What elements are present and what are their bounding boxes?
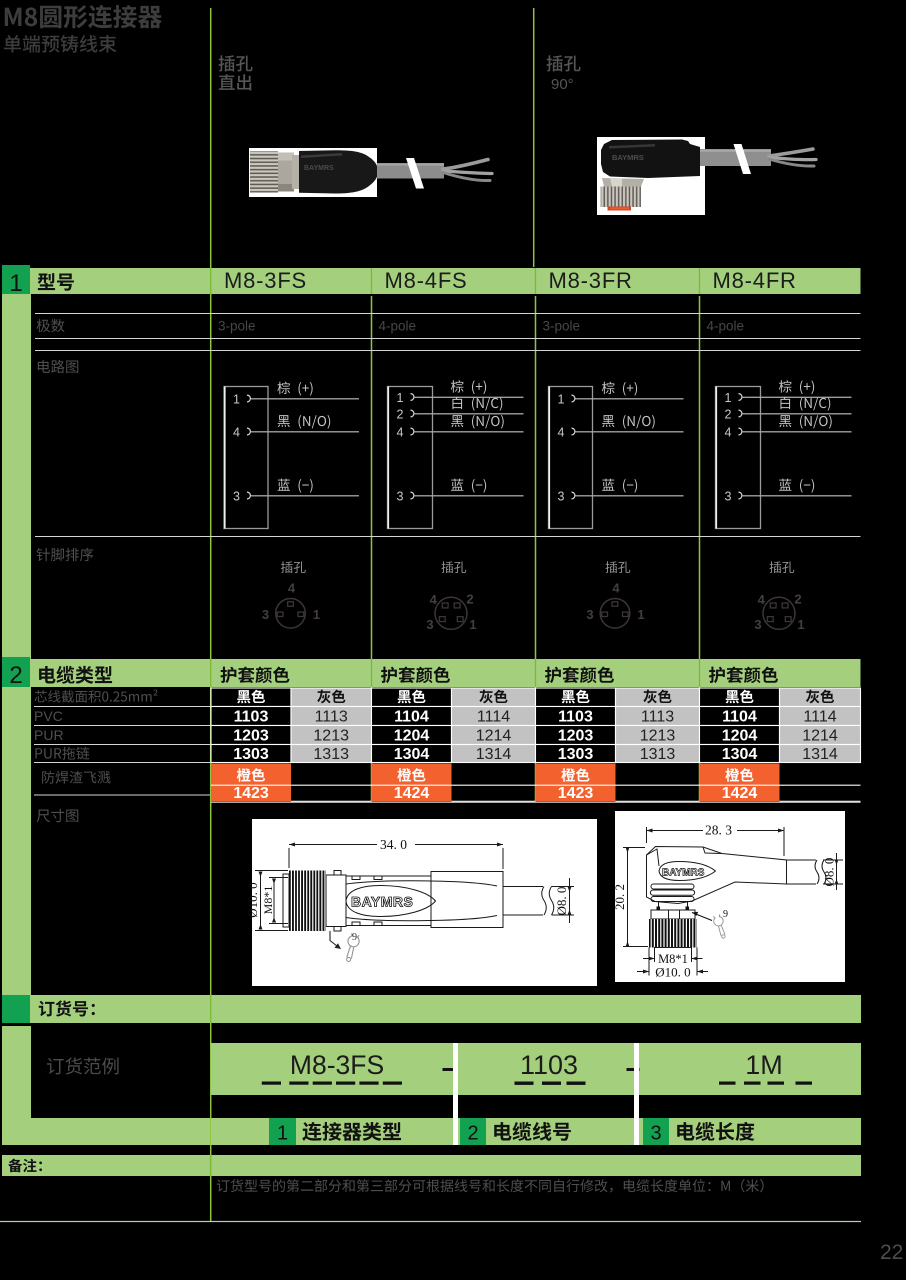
svg-text:1313: 1313 — [313, 746, 349, 763]
svg-text:1104: 1104 — [394, 709, 429, 726]
svg-text:1424: 1424 — [722, 785, 758, 802]
svg-text:3: 3 — [233, 490, 240, 504]
svg-text:4-pole: 4-pole — [379, 319, 417, 334]
svg-text:20. 2: 20. 2 — [612, 884, 627, 910]
svg-text:1213: 1213 — [313, 728, 349, 745]
svg-text:3-pole: 3-pole — [218, 319, 256, 334]
svg-text:1114: 1114 — [477, 709, 510, 726]
svg-text:1213: 1213 — [640, 728, 676, 745]
svg-text:1103: 1103 — [234, 709, 269, 726]
svg-text:Ø8. 0: Ø8. 0 — [554, 887, 569, 916]
svg-text:1: 1 — [637, 607, 644, 622]
svg-text:3: 3 — [725, 490, 732, 504]
svg-text:1103: 1103 — [520, 1050, 578, 1080]
svg-text:1204: 1204 — [722, 728, 758, 745]
svg-text:1313: 1313 — [640, 746, 676, 763]
svg-text:3: 3 — [558, 490, 565, 504]
svg-text:2: 2 — [794, 592, 801, 607]
svg-text:1: 1 — [469, 617, 476, 632]
svg-text:4: 4 — [397, 426, 404, 440]
svg-text:1314: 1314 — [476, 746, 512, 763]
svg-text:1304: 1304 — [394, 746, 430, 763]
svg-text:3: 3 — [754, 617, 761, 632]
svg-text:1: 1 — [558, 393, 565, 407]
svg-text:4: 4 — [558, 426, 565, 440]
svg-text:3: 3 — [586, 607, 593, 622]
svg-text:4: 4 — [288, 581, 296, 596]
svg-text:4: 4 — [430, 592, 438, 607]
svg-text:1: 1 — [797, 617, 804, 632]
svg-text:3: 3 — [262, 607, 269, 622]
svg-text:22: 22 — [880, 1241, 903, 1264]
svg-text:PVC: PVC — [34, 708, 63, 724]
svg-text:1: 1 — [397, 391, 404, 405]
svg-text:2: 2 — [725, 408, 732, 422]
svg-text:4-pole: 4-pole — [707, 319, 745, 334]
svg-text:3: 3 — [397, 490, 404, 504]
svg-text:BAYMRS: BAYMRS — [612, 153, 644, 162]
svg-text:2: 2 — [466, 592, 473, 607]
svg-text:M8*1: M8*1 — [261, 886, 275, 915]
svg-text:1424: 1424 — [394, 785, 430, 802]
svg-text:1103: 1103 — [558, 709, 593, 726]
svg-text:2: 2 — [397, 408, 404, 422]
svg-text:1303: 1303 — [558, 746, 594, 763]
svg-text:4: 4 — [612, 581, 620, 596]
svg-text:Ø8. 0: Ø8. 0 — [822, 858, 837, 887]
svg-text:1113: 1113 — [315, 709, 348, 726]
svg-text:1104: 1104 — [722, 709, 757, 726]
svg-text:1303: 1303 — [233, 746, 269, 763]
svg-text:PUR: PUR — [34, 727, 64, 743]
svg-text:M8-4FR: M8-4FR — [713, 268, 797, 293]
svg-text:M8-4FS: M8-4FS — [385, 268, 468, 293]
svg-text:4: 4 — [758, 592, 766, 607]
svg-text:9: 9 — [723, 909, 728, 920]
svg-text:3-pole: 3-pole — [543, 319, 581, 334]
svg-text:M8-3FS: M8-3FS — [224, 268, 307, 293]
svg-text:Ø10. 0: Ø10. 0 — [655, 965, 690, 980]
svg-text:1214: 1214 — [476, 728, 512, 745]
svg-text:4: 4 — [725, 426, 732, 440]
svg-text:2: 2 — [467, 1123, 478, 1145]
svg-text:3: 3 — [426, 617, 433, 632]
svg-text:1203: 1203 — [558, 728, 594, 745]
svg-text:1214: 1214 — [802, 728, 838, 745]
svg-text:4: 4 — [233, 426, 240, 440]
svg-text:1: 1 — [9, 270, 22, 297]
svg-text:BAYMRS: BAYMRS — [662, 868, 705, 879]
svg-text:2: 2 — [9, 662, 22, 689]
svg-text:9: 9 — [352, 932, 357, 943]
svg-text:1: 1 — [233, 393, 240, 407]
svg-text:1304: 1304 — [722, 746, 758, 763]
svg-text:1113: 1113 — [641, 709, 674, 726]
svg-text:1: 1 — [313, 607, 320, 622]
svg-text:1423: 1423 — [233, 785, 269, 802]
svg-text:1423: 1423 — [558, 785, 594, 802]
svg-text:1314: 1314 — [802, 746, 838, 763]
svg-text:Ø10. 0: Ø10. 0 — [245, 882, 260, 917]
svg-text:M8-3FS: M8-3FS — [290, 1050, 384, 1080]
svg-text:90°: 90° — [551, 76, 574, 93]
svg-text:1114: 1114 — [803, 709, 836, 726]
svg-text:M8-3FR: M8-3FR — [549, 268, 633, 293]
svg-text:34. 0: 34. 0 — [380, 837, 407, 852]
svg-text:BAYMRS: BAYMRS — [304, 165, 334, 172]
svg-text:1: 1 — [277, 1123, 288, 1145]
svg-text:3: 3 — [650, 1123, 661, 1145]
svg-text:28. 3: 28. 3 — [705, 823, 732, 838]
svg-text:1203: 1203 — [233, 728, 269, 745]
svg-text:BAYMRS: BAYMRS — [351, 894, 413, 910]
svg-text:1M: 1M — [745, 1050, 783, 1080]
svg-text:1204: 1204 — [394, 728, 430, 745]
svg-text:1: 1 — [725, 391, 732, 405]
